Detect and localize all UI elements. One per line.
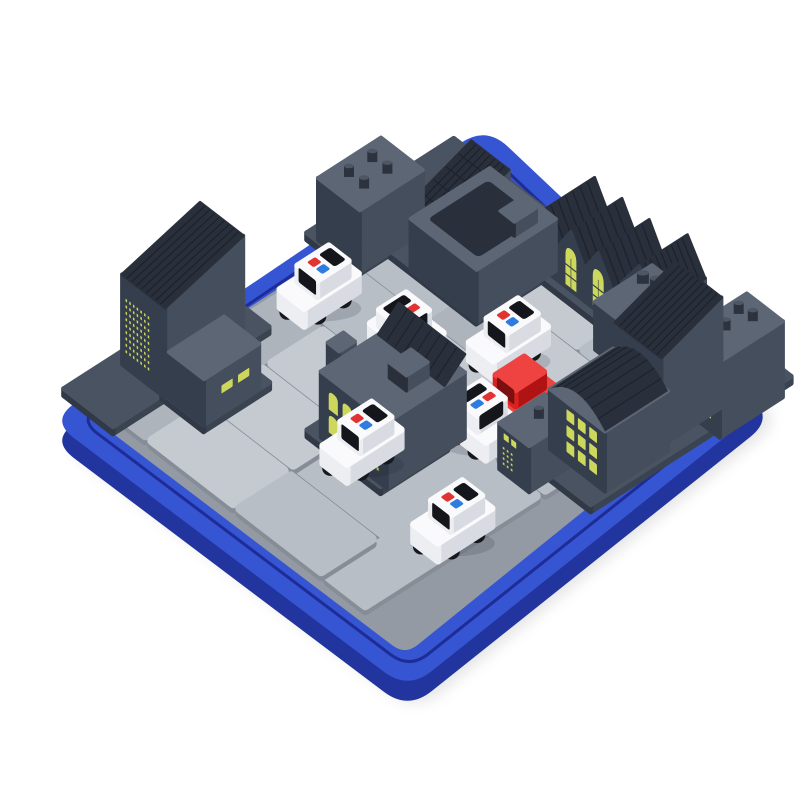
puzzle-board-scene: Product photo of an isometric city traff…	[0, 0, 800, 800]
product-photo: Product photo of an isometric city traff…	[0, 0, 800, 800]
scene-root	[0, 0, 800, 800]
